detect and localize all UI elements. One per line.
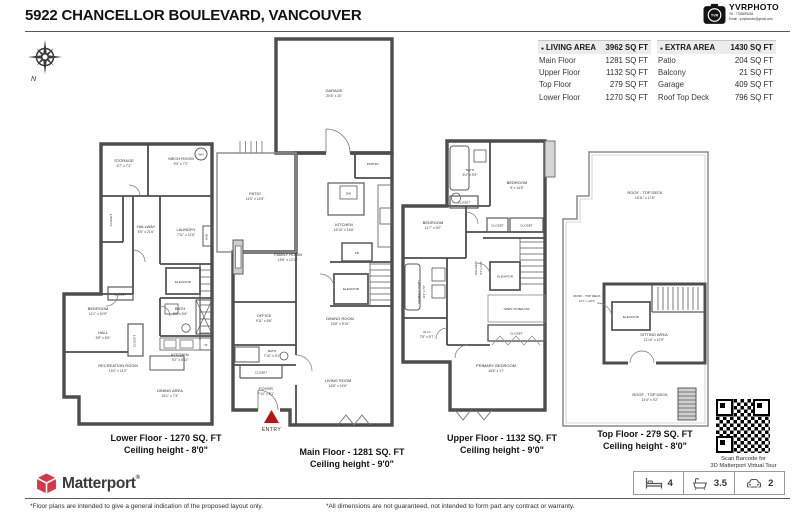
bed-icon — [645, 476, 663, 490]
room-label: BEDROOM — [423, 220, 444, 225]
room-dims: 7'10" x 5'1" — [258, 392, 276, 396]
row-label: Main Floor — [539, 56, 576, 65]
room-label: W.I.C — [423, 330, 431, 334]
room-dims: 9'2" x 8'11" — [172, 358, 189, 362]
room-label: FOYER — [259, 386, 273, 391]
room-label: CLOSET — [510, 332, 522, 336]
room-label: OPEN TO BELOW — [504, 307, 530, 311]
room-label: ELEVATOR — [623, 315, 640, 319]
room-label: W — [205, 343, 208, 347]
room-dims: 14'7" x 26'2" — [579, 299, 595, 303]
stairs — [370, 262, 392, 306]
room-label: SITTING AREA — [640, 332, 668, 337]
qr-finder — [716, 436, 733, 453]
bullet-icon: ● — [660, 46, 663, 52]
row-label: Balcony — [658, 68, 686, 77]
stairs — [520, 238, 545, 290]
brand-text: Matterport — [62, 475, 136, 492]
stove — [380, 208, 391, 224]
sink — [432, 285, 445, 298]
bath-icon — [691, 476, 709, 490]
room-label: CLOSET — [491, 224, 503, 228]
room-label: BATH — [268, 349, 276, 353]
beds-count: 4 — [668, 478, 673, 489]
room-dims: 7'10" x 5'1" — [264, 354, 282, 358]
room-dims: 5'9" x 6'6" — [96, 336, 112, 340]
table-row: Top Floor279 SQ FT — [538, 79, 651, 91]
room-dims: 15'5" x 12'11" — [278, 258, 299, 262]
vendor-email: Email : yvrphotobc@gmail.com — [729, 18, 779, 21]
qr-caption-line1: Scan Barcode for — [686, 456, 800, 463]
floor-plan-sheet: 5922 CHANCELLOR BOULEVARD, VANCOUVER YVR… — [0, 0, 800, 517]
property-stats-box: 4 3.5 2 — [633, 471, 785, 495]
floor-plan-main: GARAGE 20'6" x 20' PATIO 14'5" x 14'5" P… — [213, 30, 398, 432]
room-dims: 7'8" x 5'7" — [420, 335, 436, 339]
room-label: ELEVATOR — [175, 280, 192, 284]
room-dims: 9'11" x 8'6" — [256, 319, 273, 323]
extra-area-total: 1430 SQ FT — [731, 43, 773, 52]
room-dims: 8'9" x 5'6" — [173, 312, 189, 316]
room-dims: 20'6" x 20' — [326, 94, 342, 98]
room-label: PATIO — [249, 191, 260, 196]
walls — [233, 39, 392, 425]
stat-cars: 2 — [734, 472, 784, 494]
room-dims: 14'5" x 14'5" — [246, 197, 265, 201]
living-area-title: LIVING AREA — [546, 43, 596, 52]
room-label: HALLWAY — [137, 224, 156, 229]
entry-label: ENTRY — [262, 427, 282, 432]
qr-code — [716, 399, 770, 453]
door-arc — [296, 274, 334, 371]
room-dims: 11'1" x 10'9" — [89, 312, 108, 316]
room-dims: 16'10" x 16'6" — [334, 228, 355, 232]
room-label: CLOSET — [255, 371, 267, 375]
room-label: CLOSET — [133, 335, 137, 347]
row-value: 1270 SQ FT — [606, 93, 648, 102]
living-area-header: ●LIVING AREA 3962 SQ FT — [538, 40, 651, 54]
room-label: CLOSET — [109, 214, 113, 226]
room-label: KITCHEN — [335, 222, 353, 227]
row-value: 796 SQ FT — [735, 93, 773, 102]
room-label: CLOSET — [520, 224, 532, 228]
room-label: RECREATION ROOM — [98, 363, 137, 368]
fixtures — [233, 129, 392, 425]
table-row: Patio204 SQ FT — [657, 54, 776, 66]
footer-divider — [25, 498, 790, 499]
room-dims: 16'6" x 17' — [488, 369, 504, 373]
camera-icon: YVR — [703, 3, 726, 26]
room-label: DW — [346, 192, 351, 196]
vendor-tel: Tel : 7788693084 — [729, 13, 779, 16]
vendor-text: YVRPHOTO Tel : 7788693084 Email : yvrpho… — [729, 3, 779, 21]
walls — [604, 284, 705, 363]
room-label: PANTRY — [367, 162, 379, 166]
room-dims: 7'11" x 12'6" — [177, 233, 196, 237]
room-dims: 11'1" x 7'6" — [422, 285, 426, 299]
row-value: 204 SQ FT — [735, 56, 773, 65]
room-label: PRIMARY BEDROOM — [476, 363, 516, 368]
room-dims: 15'2" x 11'2" — [109, 369, 128, 373]
room-label: ROOF - TOP DECK — [627, 190, 663, 195]
sink — [432, 268, 445, 281]
room-label: WH — [198, 153, 203, 157]
qr-finder — [753, 399, 770, 416]
qr-finder — [716, 399, 733, 416]
row-value: 1132 SQ FT — [606, 68, 648, 77]
room-label: HALL — [98, 330, 109, 335]
vendor-logo: YVR YVRPHOTO Tel : 7788693084 Email : yv… — [703, 3, 779, 26]
qr-caption: Scan Barcode for 3D Matterport Virtual T… — [686, 456, 800, 470]
row-label: Patio — [658, 56, 676, 65]
table-row: Main Floor1281 SQ FT — [538, 54, 651, 66]
living-area-total: 3962 SQ FT — [606, 43, 648, 52]
room-label: HALLWAY — [474, 261, 478, 275]
header-divider — [25, 31, 790, 32]
caption-top-floor: Top Floor - 279 SQ. FT Ceiling height - … — [551, 429, 739, 452]
room-label: STORAGE — [114, 158, 134, 163]
caption-ceiling: Ceiling height - 8'0" — [551, 441, 739, 453]
patio-steps — [240, 141, 262, 153]
room-label: GARAGE — [325, 88, 342, 93]
room-label: CLOSET — [114, 293, 126, 297]
room-label: BEDROOM — [88, 306, 109, 311]
room-dims: 14'4" x 9'2" — [642, 398, 660, 402]
caption-title: Lower Floor - 1270 SQ. FT — [75, 433, 257, 445]
room-dims: 6'4" x 21'1" — [479, 261, 483, 275]
room-label: ELEVATOR — [497, 275, 514, 279]
fixtures — [405, 146, 545, 420]
stat-beds: 4 — [634, 472, 683, 494]
stairs — [658, 287, 698, 310]
room-label: KITCHEN — [171, 352, 189, 357]
bullet-icon: ● — [541, 46, 544, 52]
matterport-wordmark: Matterport® — [62, 475, 140, 493]
room-label: OFFICE — [257, 313, 272, 318]
row-value: 409 SQ FT — [735, 80, 773, 89]
caption-ceiling: Ceiling height - 9'0" — [258, 459, 446, 471]
room-dims: 6'7" x 7'2" — [117, 164, 133, 168]
caption-title: Top Floor - 279 SQ. FT — [551, 429, 739, 441]
table-row: Balcony21 SQ FT — [657, 66, 776, 78]
baths-count: 3.5 — [714, 478, 727, 489]
tub — [235, 347, 259, 362]
room-dims: 11'7" x 9'2" — [425, 226, 442, 230]
toilet — [182, 324, 190, 332]
room-label: ROOF - TOP DECK — [573, 294, 601, 298]
room-label: ELEVATOR — [343, 287, 360, 291]
balcony — [545, 141, 555, 177]
extra-area-header: ●EXTRA AREA 1430 SQ FT — [657, 40, 776, 54]
room-dims: 5'4" x 9'9" — [463, 173, 479, 177]
extra-area-table: ●EXTRA AREA 1430 SQ FT Patio204 SQ FT Ba… — [657, 40, 776, 104]
room-label: BATH — [466, 168, 474, 172]
vendor-badge: YVR — [711, 13, 719, 17]
compass-north-label: N — [31, 76, 36, 83]
room-label: FAMILY ROOM — [274, 252, 301, 257]
room-dims: 16'1" x 7'3" — [162, 394, 180, 398]
room-dims: 11'10" x 12'9" — [644, 338, 665, 342]
stat-baths: 3.5 — [683, 472, 733, 494]
qr-caption-line2: 3D Matterport Virtual Tour — [686, 463, 800, 470]
room-label: FR — [355, 251, 360, 255]
room-label: DINING AREA — [157, 388, 183, 393]
room-dims: 9' x 14'6" — [510, 186, 524, 190]
caption-lower-floor: Lower Floor - 1270 SQ. FT Ceiling height… — [75, 433, 257, 456]
extra-area-title: EXTRA AREA — [665, 43, 715, 52]
sink — [474, 150, 486, 162]
room-label: CLOSET — [458, 201, 470, 205]
room-label: LAUNDRY — [176, 227, 195, 232]
table-row: Upper Floor1132 SQ FT — [538, 66, 651, 78]
room-label: MECH ROOM — [168, 156, 193, 161]
room-dims: 16'6" x 8'10" — [331, 322, 350, 326]
table-row: Roof Top Deck796 SQ FT — [657, 91, 776, 103]
walls — [64, 144, 212, 424]
living-area-table: ●LIVING AREA 3962 SQ FT Main Floor1281 S… — [538, 40, 651, 104]
row-label: Roof Top Deck — [658, 93, 709, 102]
room-label: PRIMARY BATH — [417, 281, 421, 304]
room-label: W/D — [205, 233, 209, 240]
cars-count: 2 — [768, 478, 773, 489]
room-label: BEDROOM — [507, 180, 528, 185]
vendor-name: YVRPHOTO — [729, 3, 779, 12]
stairs — [200, 270, 212, 333]
caption-ceiling: Ceiling height - 8'0" — [75, 445, 257, 457]
row-value: 1281 SQ FT — [606, 56, 648, 65]
room-label: ROOF - TOP DECK — [632, 392, 668, 397]
floor-plan-upper: BATH 5'4" x 9'9" BEDROOM 9' x 14'6" CLOS… — [398, 136, 563, 431]
room-label: LIVING ROOM — [325, 378, 352, 383]
row-value: 21 SQ FT — [739, 68, 773, 77]
row-label: Upper Floor — [539, 68, 580, 77]
row-label: Top Floor — [539, 80, 572, 89]
patio-outline — [217, 153, 296, 252]
sink — [280, 352, 288, 360]
row-value: 279 SQ FT — [610, 80, 648, 89]
room-label: DINING ROOM — [326, 316, 354, 321]
room-dims: 9'5" x 7'2" — [174, 162, 190, 166]
table-row: Lower Floor1270 SQ FT — [538, 91, 651, 103]
room-dims: 5'5" x 21'6" — [138, 230, 156, 234]
room-dims: 16'6" x 14'6" — [329, 384, 348, 388]
matterport-logo: Matterport® — [36, 473, 140, 494]
car-icon — [745, 476, 763, 490]
registered-mark: ® — [136, 475, 140, 481]
compass-rose-icon — [26, 38, 64, 76]
page-title: 5922 CHANCELLOR BOULEVARD, VANCOUVER — [25, 7, 361, 24]
table-row: Garage409 SQ FT — [657, 79, 776, 91]
floor-plan-top: ROOF - TOP DECK 16'11" x 17'8" ROOF - TO… — [556, 146, 718, 433]
row-label: Garage — [658, 80, 684, 89]
garage-door-arc — [326, 129, 350, 153]
footnote-right: *All dimensions are not guaranteed, not … — [326, 503, 574, 510]
floor-plan-lower: STORAGE 6'7" x 7'2" MECH ROOM 9'5" x 7'2… — [60, 135, 215, 430]
row-label: Lower Floor — [539, 93, 580, 102]
footnote-left: *Floor plans are intended to give a gene… — [30, 503, 263, 510]
room-label: BATH — [175, 306, 185, 311]
room-dims: 16'11" x 17'8" — [635, 196, 656, 200]
matterport-icon — [36, 473, 57, 494]
